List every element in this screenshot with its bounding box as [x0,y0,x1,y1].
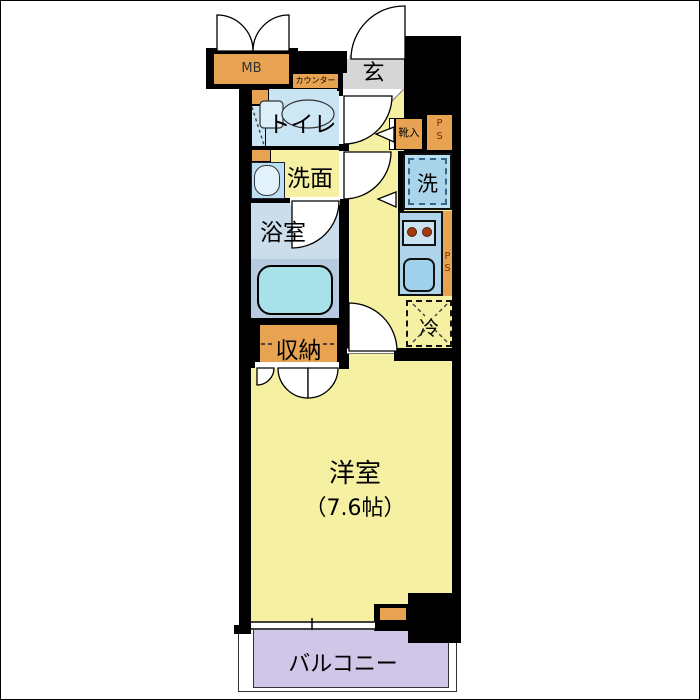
vanity-basin [254,165,280,196]
mb-door-left-arc [217,15,253,51]
toilet-label: トイレ [265,105,339,139]
kitchen-sink [403,258,435,292]
room-door-threshold [347,348,394,354]
fridge-label: 冷 [406,312,452,341]
column-bottom-left-foot [234,625,251,634]
wall-storage-left [251,323,258,368]
kitchen-stove [402,220,436,246]
wall-left [239,89,251,627]
shoe-cabinet-label: 靴入 [395,125,423,140]
wall-room-top-right [394,348,453,361]
toilet-shelf-top [251,89,269,105]
toilet-side-strip [251,105,266,147]
washroom-label: 洗面 [284,159,336,193]
pipe-space-side-label: P S [442,251,453,275]
washer-label: 洗 [403,168,452,198]
bathtub [257,265,333,315]
mb-door-right-arc [253,15,289,51]
pipe-space-side-s: S [444,263,450,274]
western-room-label: 洋室 [305,453,405,490]
wall-hall-divider [339,89,349,369]
mb-label: MB [213,53,290,85]
pipe-space-top-p: P [436,118,442,129]
storage-label: 収納 [258,331,339,365]
pipe-space-side-p: P [445,251,451,262]
column-bottom-right-b [408,593,461,643]
entrance-label: 玄 [343,60,404,88]
pipe-space-top-s: S [436,131,442,142]
entrance-door-arc [351,6,405,59]
column-service-box [380,608,406,620]
floor-plan: MB カウンター 玄 トイレ 洗面 浴室 収納 靴入 P S 洗 P S 冷 洋… [0,0,700,700]
entrance-step-line [349,55,404,59]
balcony-label: バルコニー [273,646,413,678]
pipe-space-top-label: P S [427,117,452,143]
wall-right [452,151,461,643]
western-room-size-label: （7.6帖） [295,490,415,522]
counter-label: カウンター [292,73,339,89]
bathroom-label: 浴室 [254,213,312,247]
washroom-shelf [251,149,271,162]
